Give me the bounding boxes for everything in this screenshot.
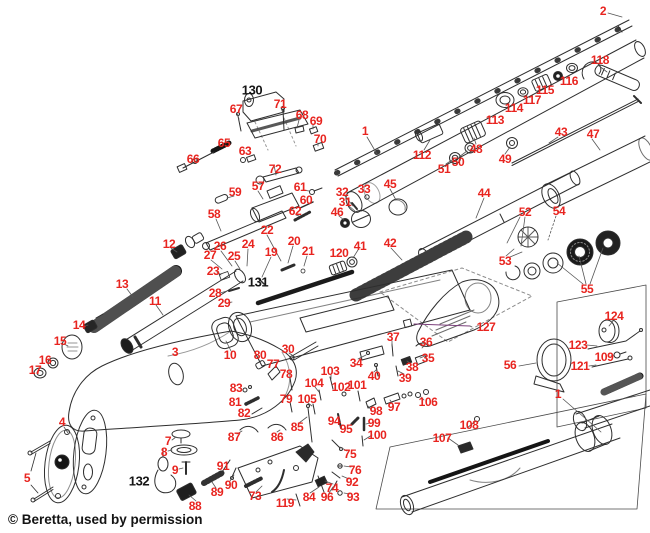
part-label-86: 86 (271, 431, 284, 443)
part-label-123: 123 (569, 339, 588, 351)
part-label-21: 21 (302, 245, 315, 257)
part-label-62: 62 (289, 205, 302, 217)
part-label-112: 112 (413, 149, 431, 161)
part-label-78: 78 (280, 368, 293, 380)
part-label-9: 9 (172, 464, 178, 476)
part-label-85: 85 (291, 421, 304, 433)
part-label-42: 42 (384, 237, 397, 249)
part-label-48: 48 (470, 143, 483, 155)
part-label-71: 71 (274, 98, 287, 110)
part-label-27: 27 (204, 249, 217, 261)
part-label-130: 130 (242, 84, 263, 97)
part-label-95: 95 (340, 423, 353, 435)
part-label-88: 88 (189, 500, 202, 512)
part-label-61: 61 (294, 181, 307, 193)
part-label-45: 45 (384, 178, 397, 190)
part-number-labels: 1123457891011121314151617192021222324252… (0, 0, 650, 533)
part-label-58: 58 (208, 208, 221, 220)
part-label-68: 68 (296, 109, 309, 121)
part-label-24: 24 (242, 238, 255, 250)
part-label-52: 52 (519, 206, 532, 218)
part-label-108: 108 (460, 419, 479, 431)
part-label-39: 39 (399, 372, 412, 384)
part-label-40: 40 (368, 370, 381, 382)
part-label-102: 102 (332, 381, 351, 393)
part-label-44: 44 (478, 187, 491, 199)
part-label-15: 15 (54, 335, 67, 347)
copyright-notice: © Beretta, used by permission (8, 512, 203, 527)
part-label-75: 75 (344, 448, 357, 460)
part-label-117: 117 (523, 94, 541, 106)
parts-diagram-page: 1123457891011121314151617192021222324252… (0, 0, 650, 533)
part-label-83: 83 (230, 382, 243, 394)
part-label-17: 17 (29, 364, 42, 376)
part-label-20: 20 (288, 235, 301, 247)
part-label-4: 4 (59, 416, 65, 428)
part-label-116: 116 (560, 75, 578, 87)
part-label-51: 51 (438, 163, 451, 175)
part-label-84: 84 (303, 491, 316, 503)
part-label-2: 2 (600, 5, 606, 17)
part-label-8: 8 (161, 446, 167, 458)
part-label-113: 113 (486, 114, 504, 126)
part-label-67: 67 (230, 103, 243, 115)
part-label-34: 34 (350, 357, 363, 369)
part-label-23: 23 (207, 265, 220, 277)
part-label-131: 131 (248, 276, 269, 289)
part-label-50: 50 (452, 156, 465, 168)
part-label-114: 114 (505, 102, 523, 114)
part-label-96: 96 (321, 491, 334, 503)
part-label-25: 25 (228, 250, 241, 262)
part-label-105: 105 (298, 393, 317, 405)
part-label-65: 65 (218, 137, 231, 149)
part-label-77: 77 (267, 358, 280, 370)
part-label-11: 11 (149, 295, 161, 307)
part-label-59: 59 (229, 186, 242, 198)
part-label-47: 47 (587, 128, 600, 140)
part-label-124: 124 (605, 310, 624, 322)
part-label-94: 94 (328, 415, 341, 427)
part-label-1: 1 (555, 388, 561, 400)
part-label-55: 55 (581, 283, 594, 295)
part-label-46: 46 (331, 206, 344, 218)
part-label-70: 70 (314, 133, 327, 145)
part-label-43: 43 (555, 126, 568, 138)
part-label-121: 121 (571, 360, 590, 372)
part-label-132: 132 (129, 475, 150, 488)
part-label-118: 118 (591, 54, 609, 66)
part-label-73: 73 (249, 490, 262, 502)
part-label-10: 10 (224, 349, 237, 361)
part-label-54: 54 (553, 205, 566, 217)
part-label-29: 29 (218, 297, 231, 309)
part-label-1: 1 (362, 125, 368, 137)
part-label-5: 5 (24, 472, 30, 484)
part-label-107: 107 (433, 432, 452, 444)
part-label-37: 37 (387, 331, 400, 343)
part-label-49: 49 (499, 153, 512, 165)
part-label-92: 92 (346, 476, 359, 488)
part-label-22: 22 (261, 224, 274, 236)
part-label-41: 41 (354, 240, 367, 252)
part-label-80: 80 (254, 349, 267, 361)
part-label-93: 93 (347, 491, 360, 503)
part-label-97: 97 (388, 401, 401, 413)
part-label-53: 53 (499, 255, 512, 267)
part-label-36: 36 (420, 336, 433, 348)
part-label-33: 33 (358, 183, 371, 195)
part-label-127: 127 (477, 321, 496, 333)
part-label-69: 69 (310, 115, 323, 127)
part-label-120: 120 (330, 247, 349, 259)
part-label-72: 72 (269, 163, 282, 175)
part-label-109: 109 (595, 351, 614, 363)
part-label-57: 57 (252, 180, 265, 192)
part-label-90: 90 (225, 479, 238, 491)
part-label-79: 79 (280, 393, 293, 405)
part-label-32: 32 (336, 186, 349, 198)
part-label-30: 30 (282, 343, 295, 355)
part-label-100: 100 (368, 429, 387, 441)
part-label-106: 106 (419, 396, 438, 408)
part-label-119: 119 (276, 497, 294, 509)
part-label-87: 87 (228, 431, 241, 443)
part-label-14: 14 (73, 319, 86, 331)
part-label-56: 56 (504, 359, 517, 371)
part-label-82: 82 (238, 407, 251, 419)
part-label-104: 104 (305, 377, 324, 389)
part-label-89: 89 (211, 486, 224, 498)
part-label-3: 3 (172, 346, 178, 358)
part-label-12: 12 (163, 238, 176, 250)
part-label-19: 19 (265, 246, 278, 258)
part-label-35: 35 (422, 352, 435, 364)
part-label-63: 63 (239, 145, 252, 157)
part-label-91: 91 (217, 460, 230, 472)
part-label-66: 66 (187, 153, 200, 165)
part-label-13: 13 (116, 278, 129, 290)
